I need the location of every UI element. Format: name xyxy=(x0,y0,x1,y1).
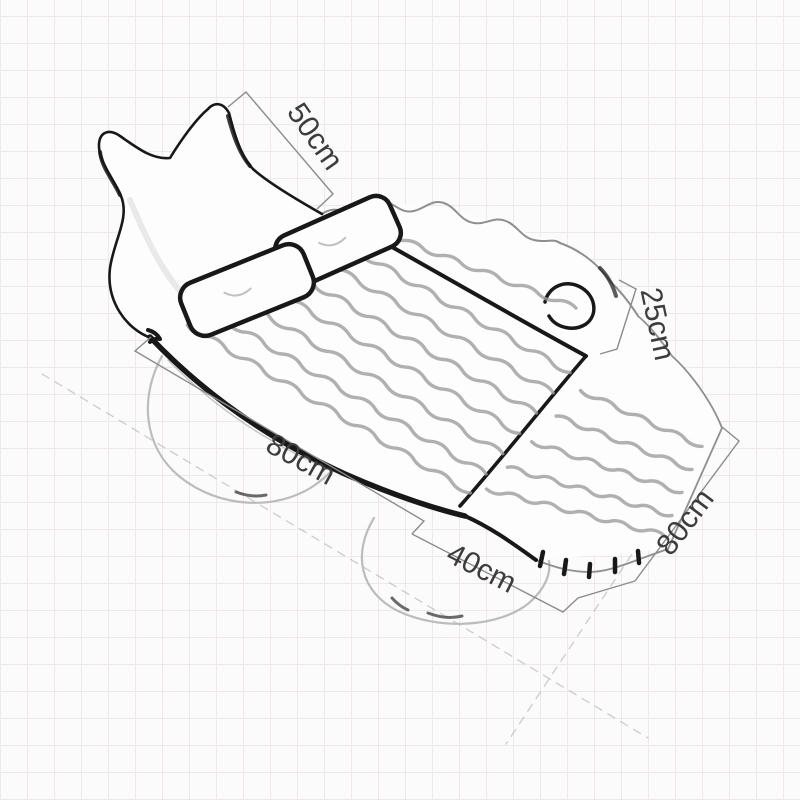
foot-tab xyxy=(589,564,590,577)
dim-label-50cm: 50cm xyxy=(280,97,349,176)
foot-tab xyxy=(638,551,639,563)
foot-tab xyxy=(564,560,566,574)
sketch-canvas: 50cm 25cm 80cm 40cm 80cm xyxy=(0,0,800,800)
guide-line-short xyxy=(506,542,640,744)
foot-tab xyxy=(540,552,543,566)
mattress-dimension-diagram: 50cm 25cm 80cm 40cm 80cm xyxy=(0,0,800,800)
left-leg-accent xyxy=(236,492,266,496)
right-leg-accent xyxy=(428,613,462,617)
dim-label-40cm: 40cm xyxy=(441,537,521,600)
